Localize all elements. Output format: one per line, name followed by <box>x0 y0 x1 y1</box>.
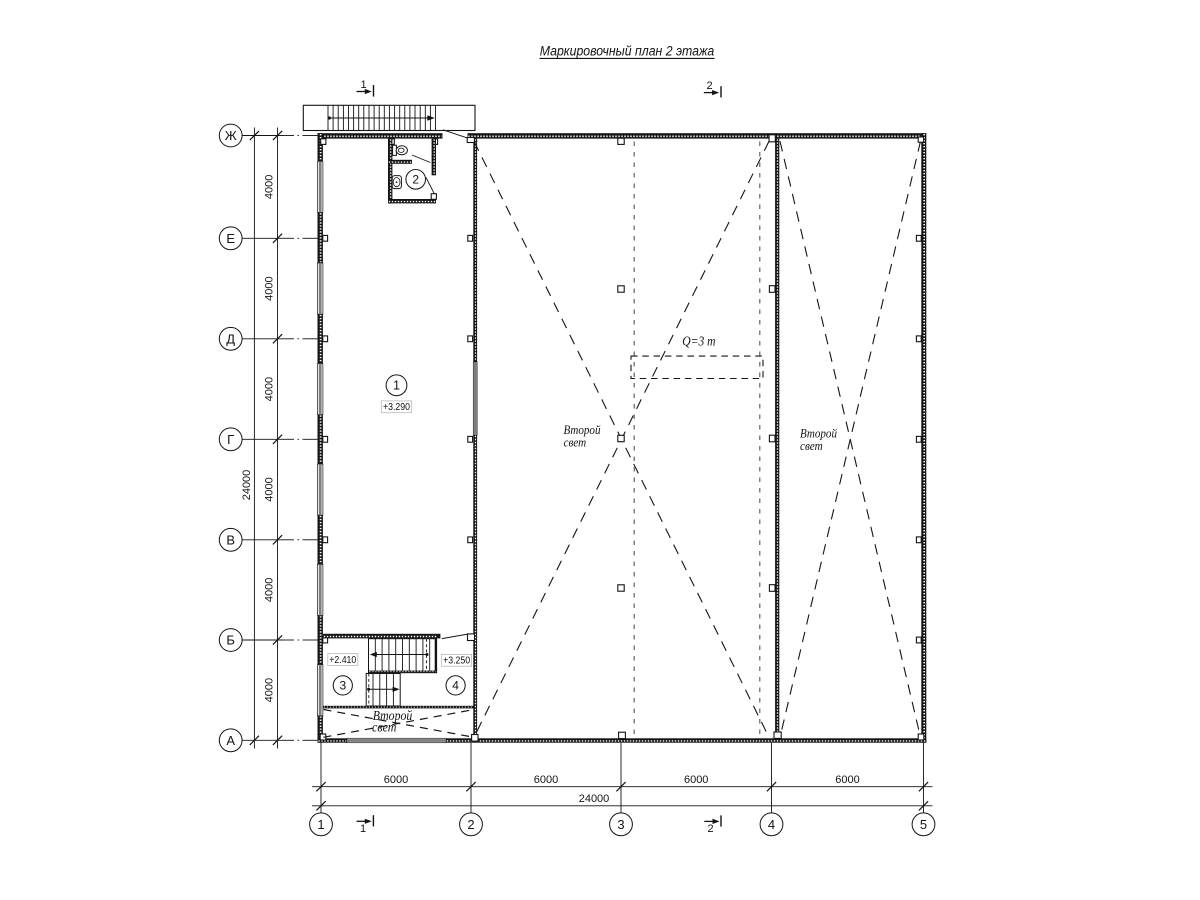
svg-text:24000: 24000 <box>241 470 253 501</box>
svg-text:В: В <box>226 532 235 547</box>
svg-text:Б: Б <box>226 633 235 648</box>
svg-text:свет: свет <box>564 434 587 449</box>
svg-text:24000: 24000 <box>579 793 610 805</box>
svg-text:Г: Г <box>227 432 234 447</box>
svg-text:4000: 4000 <box>264 578 276 602</box>
svg-text:4: 4 <box>768 817 775 832</box>
svg-text:6000: 6000 <box>534 774 558 786</box>
svg-text:+3.250: +3.250 <box>443 656 470 667</box>
svg-text:5: 5 <box>920 817 927 832</box>
svg-text:2: 2 <box>412 173 419 187</box>
svg-text:1: 1 <box>360 823 366 835</box>
svg-text:2: 2 <box>467 817 474 832</box>
svg-text:+2.410: +2.410 <box>329 655 356 666</box>
svg-text:Д: Д <box>226 331 235 346</box>
svg-text:3: 3 <box>617 817 624 832</box>
svg-text:1: 1 <box>360 79 366 91</box>
svg-text:свет: свет <box>372 721 397 736</box>
svg-text:4: 4 <box>452 679 459 693</box>
svg-text:4000: 4000 <box>264 678 276 702</box>
svg-text:4000: 4000 <box>264 175 276 199</box>
svg-text:А: А <box>226 733 235 748</box>
svg-text:6000: 6000 <box>835 774 859 786</box>
svg-text:4000: 4000 <box>264 276 276 300</box>
svg-text:Ж: Ж <box>225 128 237 143</box>
svg-text:Маркировочный план 2 этажа: Маркировочный план 2 этажа <box>540 44 715 60</box>
svg-text:+3.290: +3.290 <box>383 402 410 413</box>
svg-text:свет: свет <box>800 438 823 453</box>
svg-text:2: 2 <box>706 80 712 92</box>
svg-text:2: 2 <box>707 823 713 835</box>
svg-text:Q=3 т: Q=3 т <box>682 334 715 349</box>
svg-text:1: 1 <box>317 817 324 832</box>
svg-text:6000: 6000 <box>684 774 708 786</box>
svg-text:Е: Е <box>226 231 235 246</box>
svg-text:6000: 6000 <box>384 774 408 786</box>
svg-text:3: 3 <box>339 679 346 693</box>
svg-text:4000: 4000 <box>264 377 276 401</box>
svg-text:1: 1 <box>393 379 400 393</box>
svg-text:4000: 4000 <box>264 477 276 501</box>
